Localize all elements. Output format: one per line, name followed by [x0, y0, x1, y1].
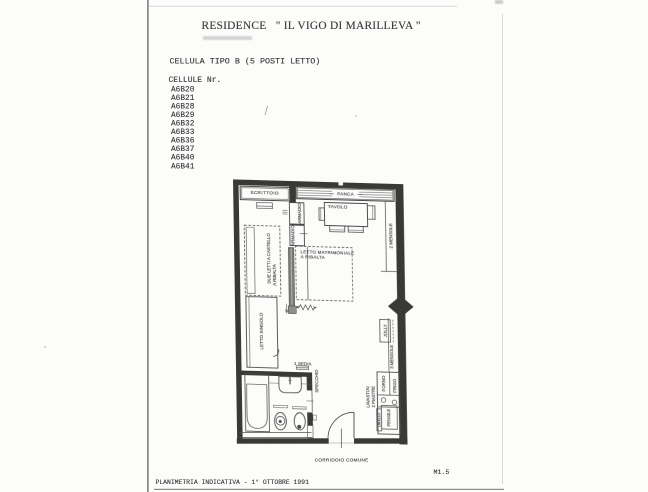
svg-text:A6B28: A6B28 — [171, 103, 195, 111]
svg-text:A6B37: A6B37 — [171, 146, 195, 154]
svg-text:A RIBALTA: A RIBALTA — [272, 264, 277, 286]
svg-text:3 MENSOLE: 3 MENSOLE — [389, 345, 394, 369]
svg-text:A6B33: A6B33 — [171, 129, 195, 137]
svg-text:A RIBALTA: A RIBALTA — [301, 254, 325, 260]
svg-text:ARMADIO: ARMADIO — [290, 225, 295, 246]
svg-text:CORRIDOIO COMUNE: CORRIDOIO COMUNE — [315, 457, 369, 462]
svg-text:TAVOLO: TAVOLO — [328, 204, 348, 210]
svg-text:CELLULE Nr.: CELLULE Nr. — [169, 76, 222, 85]
svg-text:2 PIASTRE: 2 PIASTRE — [371, 386, 376, 408]
svg-text:A6B21: A6B21 — [171, 95, 195, 103]
svg-text:JOLLY: JOLLY — [383, 324, 388, 337]
svg-text:FORNO: FORNO — [381, 375, 386, 392]
svg-text:PLANIMETRIA INDICATIVA - 1° OT: PLANIMETRIA INDICATIVA - 1° OTTOBRE 1991 — [156, 478, 310, 486]
svg-text:SPECCHIO: SPECCHIO — [314, 369, 319, 393]
svg-text:DUE LETTI A CASTELLO: DUE LETTI A CASTELLO — [266, 233, 272, 284]
svg-text:FRIGO: FRIGO — [392, 378, 397, 393]
svg-text:2 MENSOLE: 2 MENSOLE — [388, 223, 393, 248]
svg-text:LETTO SINGOLO: LETTO SINGOLO — [259, 312, 265, 349]
svg-text:A6B40: A6B40 — [171, 155, 195, 163]
svg-text:M1.5: M1.5 — [434, 469, 450, 476]
svg-text:CELLULA TIPO B (5 POSTI LETTO): CELLULA TIPO B (5 POSTI LETTO) — [170, 57, 321, 67]
svg-text:RESIDENCE " IL VIGO DI MARIL: RESIDENCE " IL VIGO DI MARILLEVA " — [202, 20, 421, 32]
svg-text:LAVELLO: LAVELLO — [377, 412, 381, 427]
svg-text:A6B20: A6B20 — [171, 86, 195, 94]
svg-text:A6B41: A6B41 — [171, 163, 195, 171]
svg-text:PANCA: PANCA — [337, 192, 354, 197]
svg-text:A6B29: A6B29 — [171, 112, 195, 120]
svg-text:ARMADIO: ARMADIO — [297, 203, 302, 224]
svg-text:SCRITTOIO: SCRITTOIO — [250, 190, 279, 196]
svg-text:A6B36: A6B36 — [171, 138, 195, 146]
svg-text:A6B32: A6B32 — [171, 121, 195, 129]
svg-text:PENSILE: PENSILE — [386, 409, 391, 427]
